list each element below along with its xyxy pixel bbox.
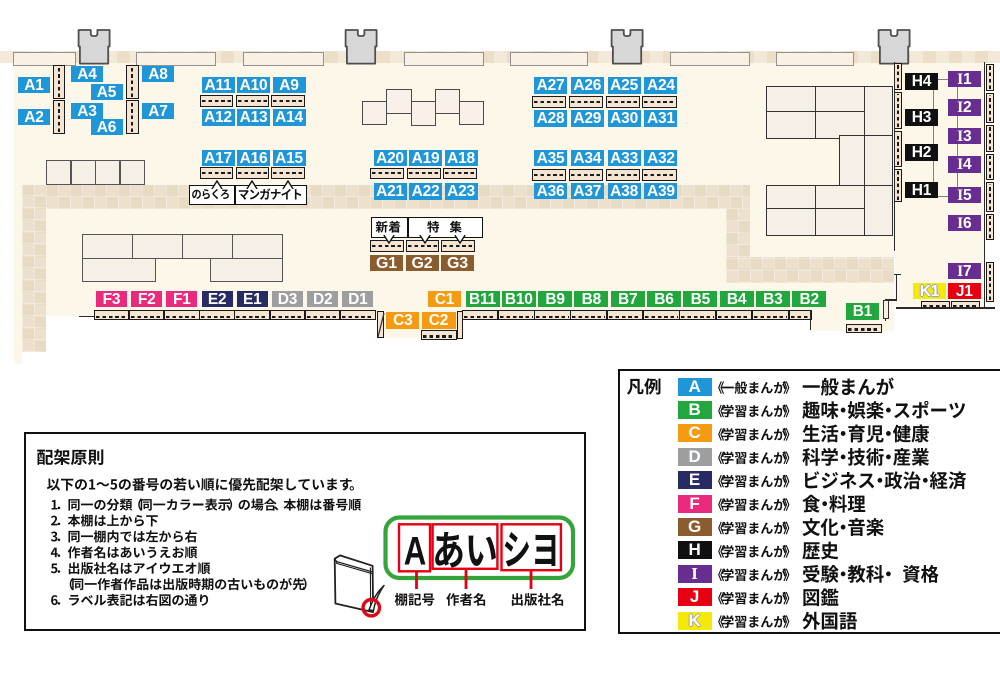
svg-text:A: A bbox=[404, 529, 427, 574]
